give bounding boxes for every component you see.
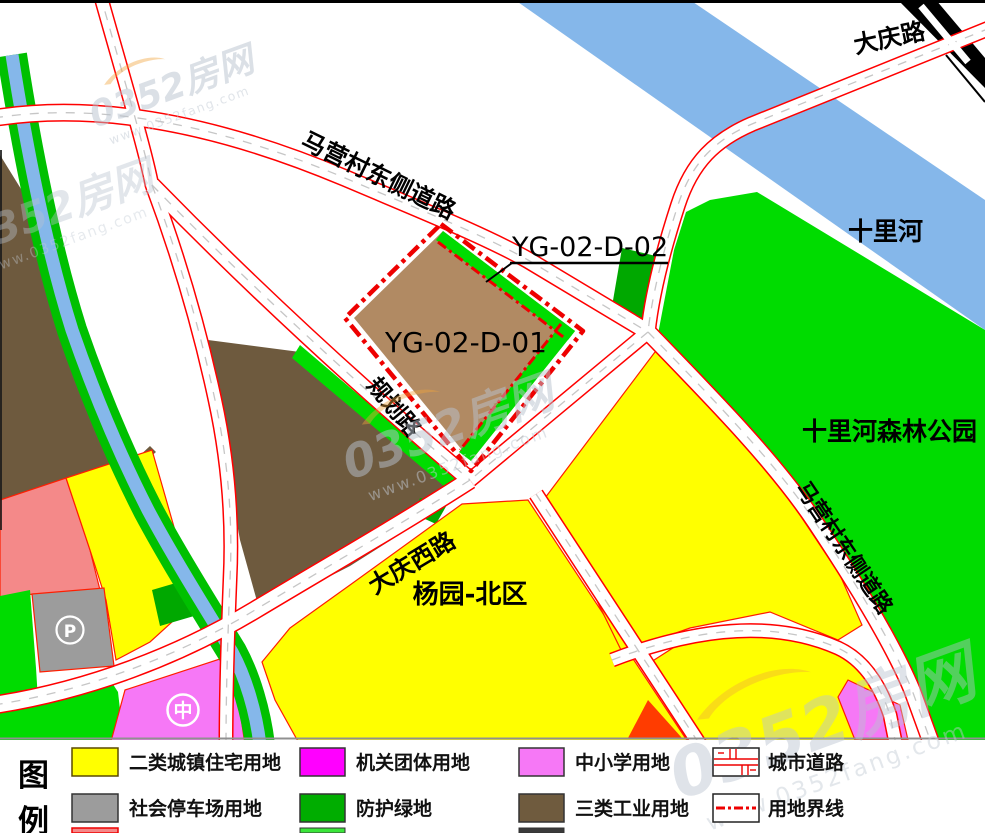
legend-title-char-1: 图 (18, 758, 49, 794)
legend-swatch-green-buffer (300, 794, 345, 822)
legend-swatch-urban-road (713, 748, 759, 776)
legend-swatch-partial-3 (519, 828, 564, 833)
legend-label-residential2: 二类城镇住宅用地 (129, 751, 281, 774)
legend-swatch-boundary (713, 794, 759, 822)
planning-map-canvas: YG-02-D-02 YG-02-D-01 马营村东侧道路 大庆路 十里河 十里… (0, 0, 985, 833)
label-plot-yg-02-d-02: YG-02-D-02 (511, 232, 668, 263)
legend-label-industrial3: 三类工业用地 (575, 797, 689, 820)
legend-label-government: 机关团体用地 (356, 751, 470, 774)
label-plot-yg-02-d-01: YG-02-D-01 (384, 326, 547, 359)
label-forest-park: 十里河森林公园 (802, 417, 977, 446)
label-river: 十里河 (848, 217, 923, 246)
legend-title-char-2: 例 (18, 804, 49, 833)
legend-label-urban-road: 城市道路 (768, 751, 845, 774)
legend-label-green-buffer: 防护绿地 (356, 797, 432, 820)
legend-swatch-government (300, 748, 345, 776)
legend-swatch-partial-2 (300, 828, 345, 833)
legend-swatch-partial-1 (72, 828, 118, 833)
parking-symbol-letter: P (64, 622, 76, 642)
legend-swatch-residential2 (72, 748, 118, 776)
legend-label-school: 中小学用地 (575, 751, 670, 774)
label-district: 杨园-北区 (413, 580, 528, 610)
legend-swatch-school (519, 748, 564, 776)
legend-label-boundary: 用地界线 (768, 797, 844, 820)
school-symbol-letter: 中 (173, 699, 192, 722)
legend-label-parking: 社会停车场用地 (128, 797, 262, 820)
top-border (0, 0, 985, 3)
legend-swatch-parking (72, 794, 118, 822)
legend-swatch-industrial3 (519, 794, 564, 822)
planning-map-page: YG-02-D-02 YG-02-D-01 马营村东侧道路 大庆路 十里河 十里… (0, 0, 985, 833)
